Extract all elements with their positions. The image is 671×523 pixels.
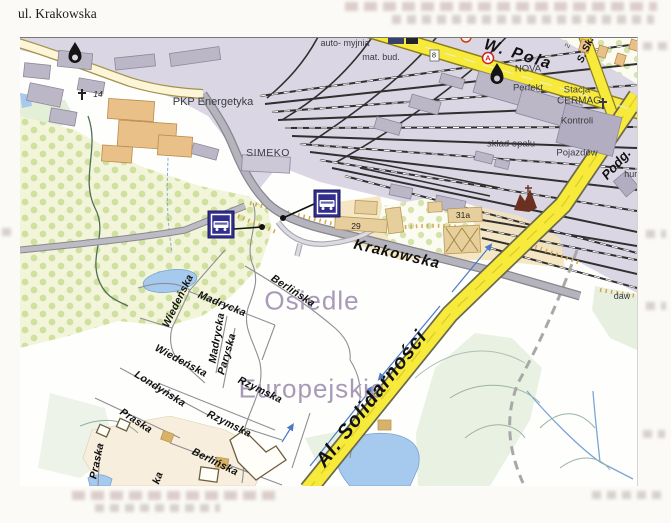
label-nova: NOVA (515, 64, 541, 75)
map-pin-hole (72, 55, 78, 61)
marker-red-clipped (461, 38, 471, 42)
page-bleedthrough (2, 228, 16, 236)
label-number-14: 14 (93, 89, 102, 99)
scanned-map-page: ul. Krakowska (0, 0, 671, 523)
page-bleedthrough (643, 430, 665, 438)
label-marker-a: A (485, 54, 490, 63)
building (428, 202, 443, 213)
building (191, 143, 219, 160)
map-pin-hole (494, 76, 500, 82)
bus-stop-marker (314, 190, 340, 217)
label-auto-myjnia: auto- myjnia (320, 38, 369, 48)
label-daw: daw (614, 291, 631, 301)
label-stacja-line3: Pojazdów (556, 148, 597, 158)
page-bleedthrough (392, 15, 654, 24)
page-bleedthrough (72, 491, 277, 500)
label-stacja-kontroli: Stacja Kontroli Pojazdów (556, 65, 597, 180)
label-hurt: hurt (624, 169, 638, 179)
page-bleedthrough (95, 504, 220, 512)
building-carwash (406, 38, 418, 44)
page-bleedthrough (646, 302, 666, 310)
label-mat-bud: mat. bud. (362, 52, 400, 62)
page-bleedthrough (592, 491, 662, 499)
building (23, 63, 50, 80)
building-school (101, 145, 132, 163)
page-bleedthrough (646, 230, 666, 238)
building-school (107, 98, 154, 121)
building-hatched (443, 225, 480, 254)
label-sklad-opalu: skład opału (487, 139, 535, 150)
page-title: ul. Krakowska (18, 6, 97, 22)
building-school (157, 135, 192, 157)
label-building-31a: 31a (456, 210, 470, 220)
green-park-big (416, 333, 542, 486)
label-simeko: SIMEKO (246, 147, 290, 159)
bus-stop-point (280, 215, 286, 221)
label-stacja-line2: Kontroli (556, 117, 597, 127)
page-bleedthrough (643, 42, 667, 50)
label-stacja-line1: Stacja (556, 85, 597, 95)
bus-stop-marker (208, 211, 234, 238)
label-number-8: 8 (432, 51, 436, 60)
building (355, 200, 378, 214)
label-pkp-energetyka: PKP Energetyka (173, 96, 254, 108)
stream-blue (527, 391, 633, 479)
building-carwash (388, 38, 404, 44)
label-perfekt: Perfekt (513, 83, 543, 94)
city-map: PKP Energetyka SIMEKO auto- myjnia mat. … (20, 37, 638, 486)
building (385, 207, 403, 234)
page-bleedthrough (345, 2, 657, 11)
